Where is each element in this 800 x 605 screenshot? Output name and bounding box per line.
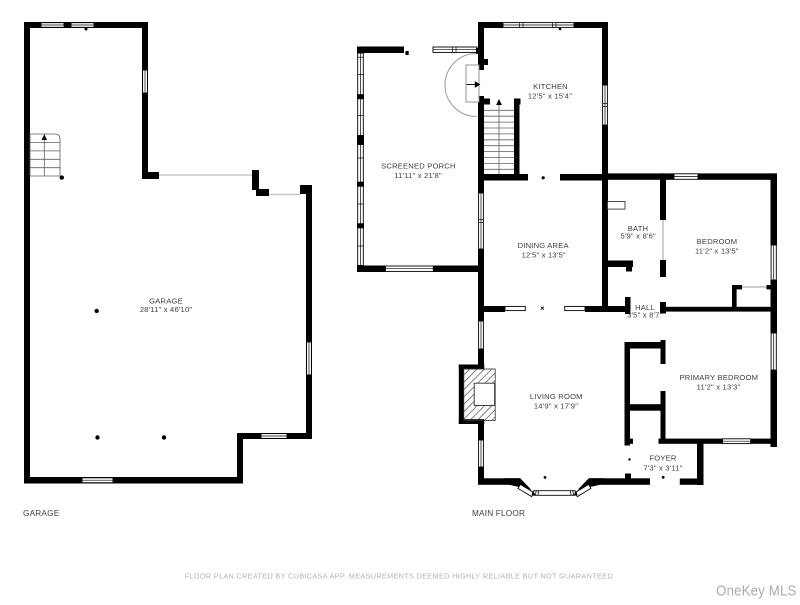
- svg-text:3'5" x 8'7": 3'5" x 8'7": [627, 311, 663, 320]
- svg-text:DINING AREA: DINING AREA: [518, 241, 570, 250]
- svg-text:11'11" x 21'8": 11'11" x 21'8": [394, 171, 442, 180]
- svg-text:LIVING ROOM: LIVING ROOM: [530, 392, 583, 401]
- svg-text:11'2" x 13'3": 11'2" x 13'3": [697, 382, 741, 391]
- svg-text:FLOOR PLAN CREATED BY CUBICASA: FLOOR PLAN CREATED BY CUBICASA APP. MEAS…: [185, 572, 616, 581]
- svg-text:5'9" x 8'6": 5'9" x 8'6": [620, 232, 656, 241]
- svg-text:11'2" x 13'5": 11'2" x 13'5": [695, 247, 739, 256]
- svg-text:BEDROOM: BEDROOM: [697, 237, 738, 246]
- svg-text:7'3" x 3'11": 7'3" x 3'11": [643, 463, 682, 472]
- svg-text:PRIMARY BEDROOM: PRIMARY BEDROOM: [679, 373, 758, 382]
- svg-text:28'11" x 46'10": 28'11" x 46'10": [140, 305, 193, 314]
- svg-text:12'5" x 15'4": 12'5" x 15'4": [528, 91, 572, 100]
- svg-text:KITCHEN: KITCHEN: [533, 82, 568, 91]
- svg-text:SCREENED PORCH: SCREENED PORCH: [381, 162, 456, 171]
- svg-text:FOYER: FOYER: [649, 454, 676, 463]
- svg-text:OneKey MLS: OneKey MLS: [716, 583, 796, 600]
- svg-text:14'9" x 17'9": 14'9" x 17'9": [534, 402, 578, 411]
- svg-text:GARAGE: GARAGE: [23, 508, 60, 518]
- svg-text:12'5" x 13'5": 12'5" x 13'5": [522, 250, 566, 259]
- svg-text:MAIN FLOOR: MAIN FLOOR: [472, 508, 525, 518]
